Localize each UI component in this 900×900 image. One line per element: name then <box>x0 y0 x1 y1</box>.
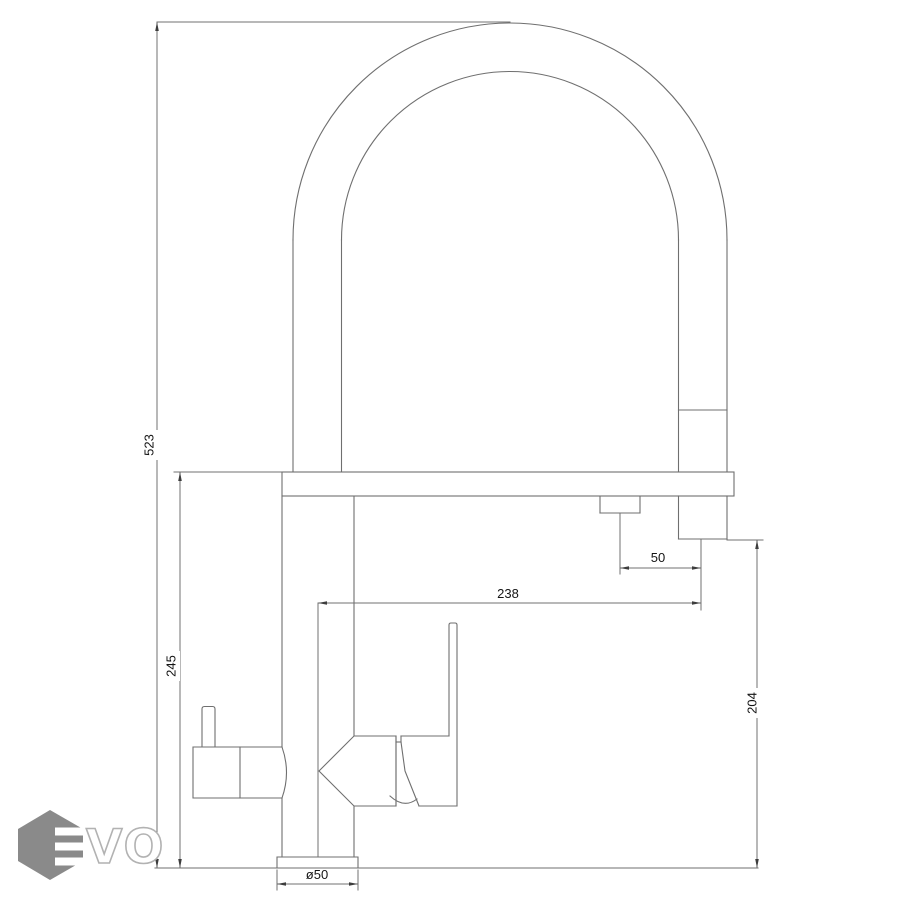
dimension-overall-height: 523 <box>141 22 510 868</box>
dimension-spout-height: 245 <box>163 472 282 868</box>
brand-logo: VO <box>18 810 166 880</box>
logo-e-bar <box>55 858 85 866</box>
handle-tilt-edge <box>401 742 419 806</box>
drawing-canvas: 523 245 238 50 204 <box>0 0 900 900</box>
dimension-label-base-diameter: ø50 <box>306 867 328 882</box>
dimension-label-238: 238 <box>497 586 519 601</box>
spout-arm <box>282 472 734 496</box>
handle-swing-arc <box>390 796 417 803</box>
dimension-base-diameter: ø50 <box>277 867 358 890</box>
side-valve <box>193 707 287 799</box>
logo-text: VO <box>86 820 166 875</box>
dimension-label-523: 523 <box>141 434 156 456</box>
handle-lever-rod <box>449 623 457 806</box>
sprayer-dock <box>600 497 640 513</box>
spout-arch <box>293 23 727 472</box>
faucet-outline <box>155 23 758 868</box>
dimension-nozzle-clearance: 204 <box>727 540 763 868</box>
mixer-handle <box>319 623 457 806</box>
logo-e-bar <box>55 828 85 836</box>
handle-pivot-cap <box>319 736 396 806</box>
dimension-label-50: 50 <box>651 550 665 565</box>
logo-e-bar <box>55 843 85 851</box>
dimension-label-204: 204 <box>744 692 759 714</box>
spray-head <box>679 496 728 539</box>
dimension-nozzle-offset: 50 <box>620 513 701 574</box>
faucet-technical-drawing: 523 245 238 50 204 <box>0 0 900 900</box>
side-valve-lever <box>202 707 215 748</box>
dimension-label-245: 245 <box>163 655 178 677</box>
dimension-spout-reach: 238 <box>318 540 701 857</box>
